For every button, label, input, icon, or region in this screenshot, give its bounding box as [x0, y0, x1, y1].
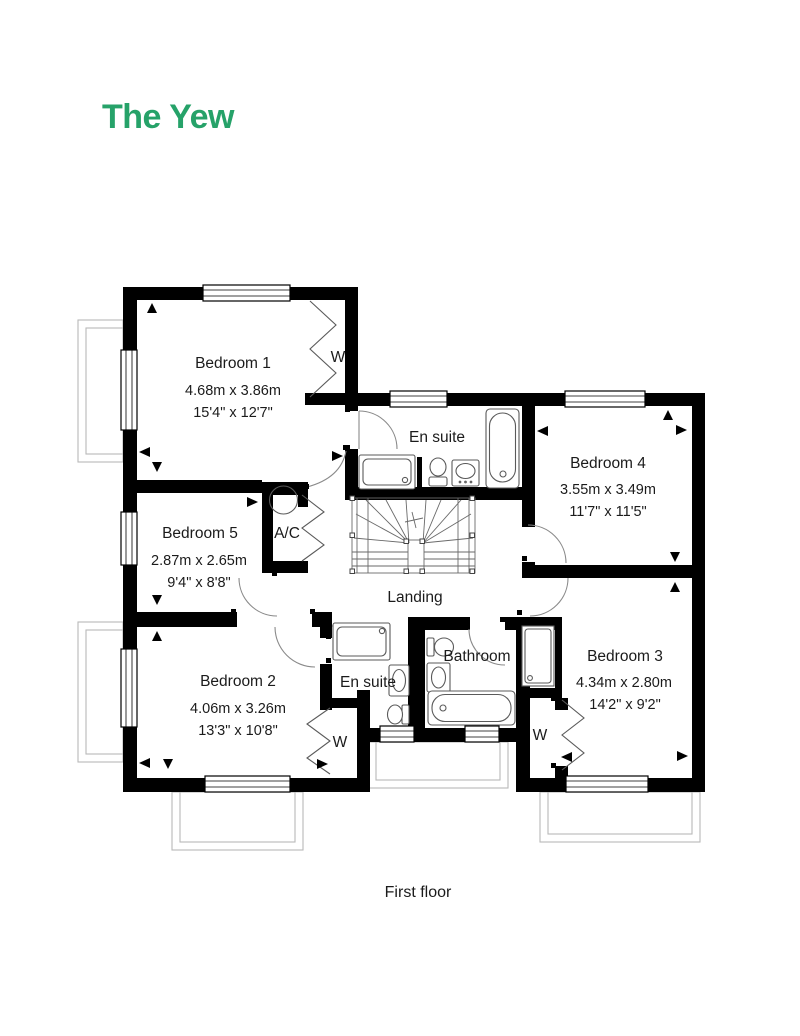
- ensuite1-shower: [359, 455, 415, 489]
- ensuite2-label: En suite: [340, 674, 396, 691]
- bedroom4-name: Bedroom 4: [570, 455, 646, 472]
- floor-plan-drawing: Bedroom 1 4.68m x 3.86m 15'4" x 12'7" W …: [0, 0, 800, 1036]
- airing-cupboard-label: A/C: [274, 525, 300, 542]
- bathroom-shower: [522, 626, 554, 686]
- window: [121, 350, 137, 430]
- wardrobe1-label: W: [331, 349, 346, 366]
- window: [566, 776, 648, 792]
- bathroom-bath: [428, 691, 515, 725]
- bedroom2-name: Bedroom 2: [200, 673, 276, 690]
- wardrobe2-label: W: [333, 734, 348, 751]
- staircase: [350, 496, 475, 574]
- landing-label: Landing: [387, 589, 442, 606]
- bedroom4-metric: 3.55m x 3.49m: [560, 482, 656, 498]
- window: [203, 285, 290, 301]
- window: [121, 512, 137, 565]
- bedroom3-imperial: 14'2" x 9'2": [589, 697, 660, 713]
- window: [390, 391, 447, 407]
- bedroom1-name: Bedroom 1: [195, 355, 271, 372]
- wardrobe3-bifold: [562, 700, 584, 770]
- ensuite1-toilet: [429, 458, 447, 486]
- bedroom1-imperial: 15'4" x 12'7": [193, 405, 273, 421]
- bathroom-label: Bathroom: [443, 648, 510, 665]
- window: [380, 726, 414, 742]
- bathroom-basin: [427, 663, 450, 692]
- bedroom4-imperial: 11'7" x 11'5": [569, 504, 646, 520]
- bedroom1-metric: 4.68m x 3.86m: [185, 383, 281, 399]
- ensuite2-toilet: [388, 705, 410, 724]
- ensuite1-basin: [452, 460, 479, 486]
- bedroom5-door: [239, 578, 277, 616]
- window: [465, 726, 499, 742]
- ensuite1-door: [359, 411, 397, 449]
- floor-plan-page: The Yew: [0, 0, 800, 1036]
- window: [205, 776, 290, 792]
- window: [565, 391, 645, 407]
- bedroom5-name: Bedroom 5: [162, 525, 238, 542]
- wardrobe3-label: W: [533, 727, 548, 744]
- bedroom3-name: Bedroom 3: [587, 648, 663, 665]
- floor-caption: First floor: [0, 884, 800, 902]
- bedroom3-metric: 4.34m x 2.80m: [576, 675, 672, 691]
- bedroom4-door: [528, 525, 566, 563]
- bedroom5-metric: 2.87m x 2.65m: [151, 553, 247, 569]
- window: [121, 649, 137, 727]
- bedroom5-imperial: 9'4" x 8'8": [167, 575, 230, 591]
- bedroom2-metric: 4.06m x 3.26m: [190, 701, 286, 717]
- bedroom2-imperial: 13'3" x 10'8": [198, 723, 278, 739]
- bedroom3-door: [530, 578, 568, 616]
- ensuite1-label: En suite: [409, 429, 465, 446]
- ensuite2-shower: [333, 623, 390, 660]
- bedroom2-door: [275, 627, 315, 667]
- ensuite1-bath: [486, 409, 519, 488]
